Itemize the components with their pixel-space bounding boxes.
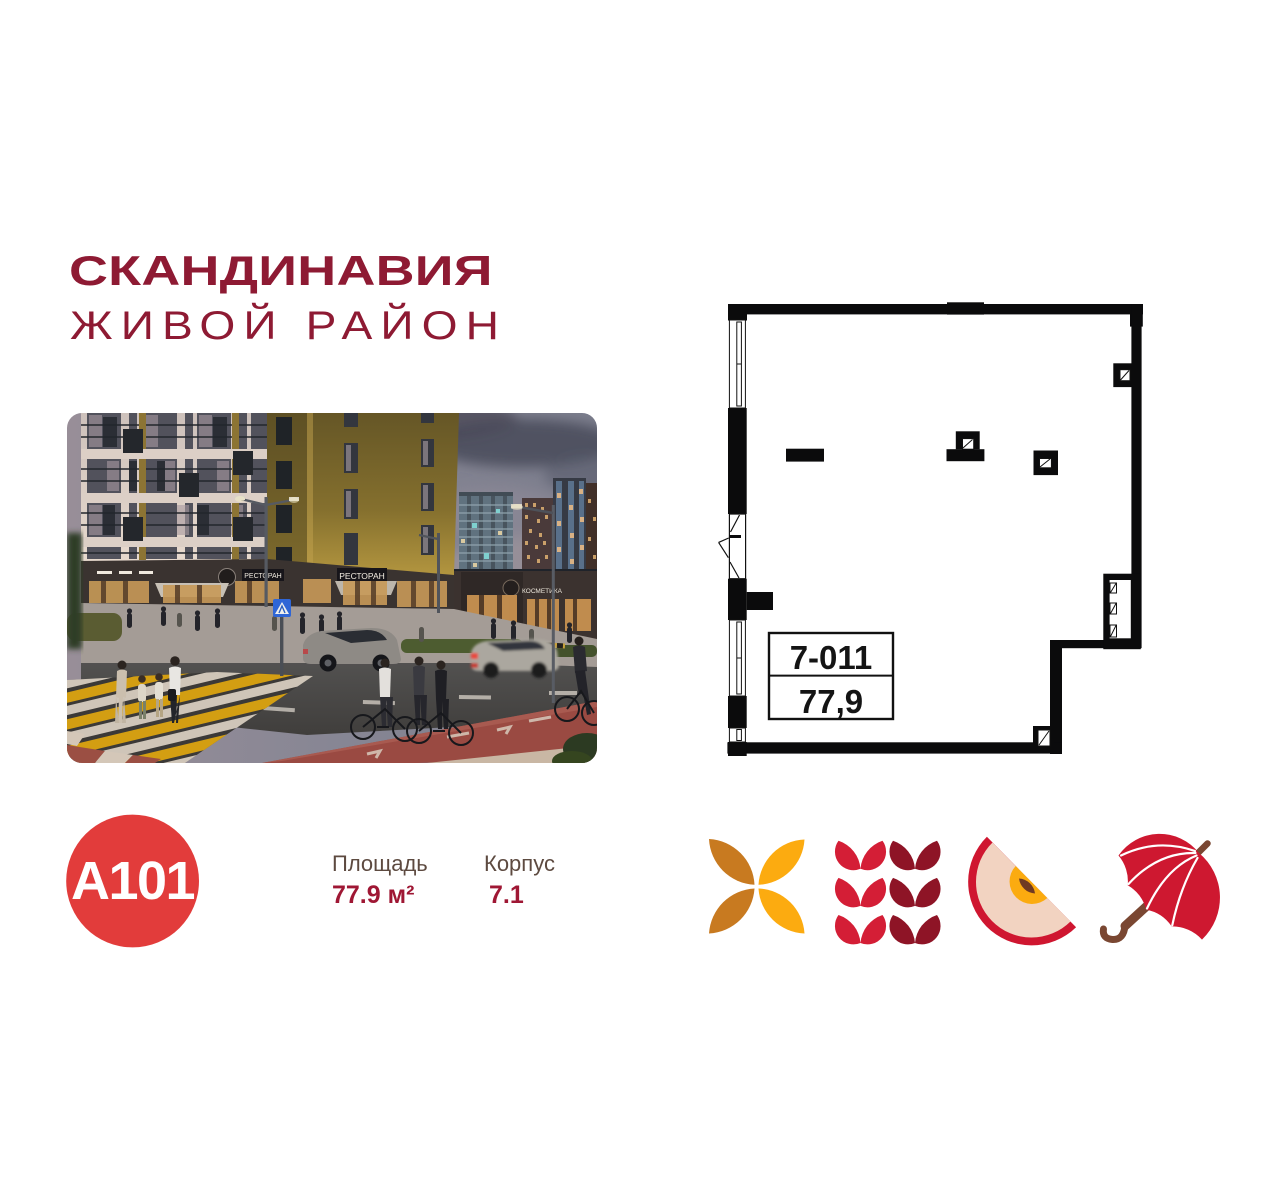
svg-text:7-011: 7-011: [790, 639, 873, 676]
svg-text:77,9: 77,9: [799, 683, 863, 720]
